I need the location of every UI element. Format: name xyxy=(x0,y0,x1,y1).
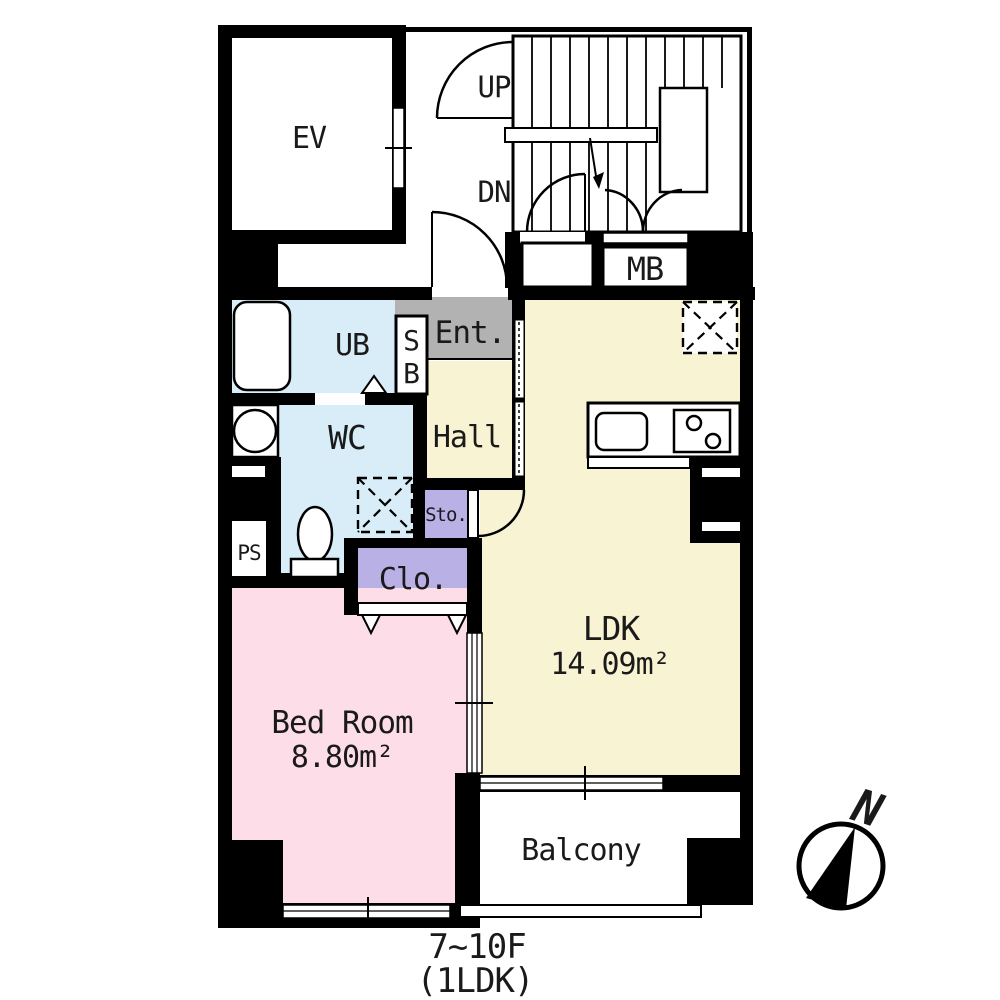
stair-void xyxy=(660,88,707,192)
stairwell xyxy=(405,27,752,234)
outer-wall-top xyxy=(405,27,752,32)
bedroom-balcony-wall xyxy=(455,773,480,903)
ub-label: UB xyxy=(335,328,369,363)
closet-right-wall xyxy=(467,538,482,633)
ldk-label: LDK xyxy=(583,609,641,648)
floor-plan-drawing: EV UP DN MB UB S B Ent. Hall WC PS Sto. … xyxy=(0,0,1000,1000)
entrance-label: Ent. xyxy=(435,315,506,351)
shoe-box-label-s: S xyxy=(403,324,419,357)
entrance-door-arc xyxy=(432,212,507,287)
mb-label: MB xyxy=(627,250,664,288)
dn-label: DN xyxy=(478,175,511,209)
closet-top-wall xyxy=(344,538,478,548)
pillar-slot-upper xyxy=(702,468,740,477)
ev-label: EV xyxy=(292,121,327,156)
meter-niche xyxy=(522,243,593,287)
storage-label: Sto. xyxy=(425,504,467,526)
ldk-room-extension xyxy=(480,490,527,777)
pillar-slot-lower xyxy=(702,522,740,531)
pillar-below-elevator xyxy=(218,230,278,288)
bedroom-label: Bed Room xyxy=(271,705,413,741)
elevator-block xyxy=(218,25,412,288)
floor-plan: EV UP DN MB UB S B Ent. Hall WC PS Sto. … xyxy=(0,0,1000,1000)
wc-hall-wall xyxy=(413,393,427,488)
balcony-label: Balcony xyxy=(521,833,640,868)
ps-label: PS xyxy=(237,541,261,565)
closet-door-track xyxy=(358,603,467,615)
toilet-tank xyxy=(291,559,338,577)
compass: N xyxy=(799,778,890,909)
meter-box-sill xyxy=(603,233,688,243)
storage-left-wall xyxy=(413,478,425,548)
top-wall-right xyxy=(508,287,755,300)
hall-label: Hall xyxy=(433,420,501,455)
bedroom-area-label: 8.80m² xyxy=(291,740,393,775)
ldk-area-label: 14.09m² xyxy=(550,647,669,682)
outer-wall-right xyxy=(747,27,752,234)
stove-burner-2 xyxy=(706,434,720,448)
storage-door-leaf xyxy=(468,490,478,538)
kitchen-counter-lip xyxy=(588,457,690,468)
wc-sink-bowl xyxy=(234,410,276,452)
kitchen-stove xyxy=(674,410,730,452)
compass-north-label: N xyxy=(845,778,890,839)
shoe-box-label-b: B xyxy=(403,357,419,390)
bathtub xyxy=(234,302,290,390)
fridge-space-box xyxy=(683,302,737,353)
ub-door-gap xyxy=(315,393,365,405)
closet-label: Clo. xyxy=(379,562,447,597)
up-label: UP xyxy=(478,70,511,104)
wc-label: WC xyxy=(328,418,366,457)
balcony-edge xyxy=(460,905,701,917)
kitchen-sink xyxy=(596,413,647,450)
stair-landing xyxy=(505,128,657,142)
stair-door-gap xyxy=(520,232,585,243)
room-fills xyxy=(232,297,740,903)
stove-burner-1 xyxy=(687,416,701,430)
left-wall xyxy=(218,287,232,928)
top-wall-left xyxy=(218,287,432,300)
hall-bottom-wall xyxy=(413,478,525,490)
toilet-bowl xyxy=(298,507,332,561)
layout-type-label: (1LDK) xyxy=(417,961,534,1000)
utility-shelf xyxy=(232,466,265,477)
balcony-pillar xyxy=(687,838,753,905)
